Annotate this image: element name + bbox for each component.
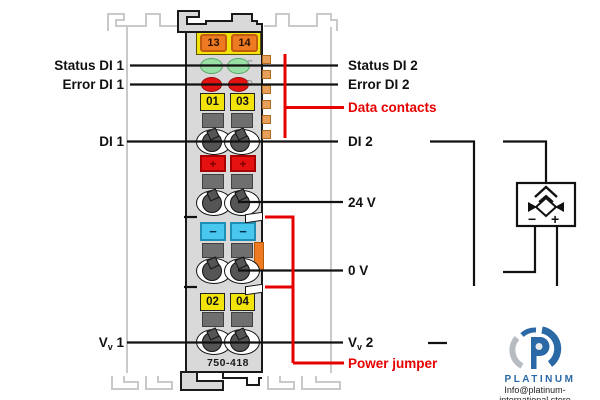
label-di2: DI 2	[348, 135, 373, 149]
data-contact	[262, 55, 271, 64]
pushbutton	[231, 174, 253, 189]
pushbutton	[231, 312, 253, 327]
terminal-number-01: 01	[200, 93, 225, 111]
sensor-triangle-icon	[528, 202, 537, 212]
watermark-logo	[512, 330, 557, 369]
watermark-email: Info@platinum-international.store	[472, 385, 598, 400]
sensor-plus-terminal: +	[551, 211, 559, 227]
vv2-main: V	[348, 335, 357, 350]
label-24v: 24 V	[348, 196, 376, 210]
led-mark-d: D	[247, 79, 253, 88]
status-led-1	[200, 58, 223, 74]
clamp-port-di2	[230, 132, 250, 152]
clamp-port-vv2	[230, 332, 250, 352]
sensor-minus-terminal: −	[528, 211, 536, 227]
label-vv2: Vv 2	[348, 336, 373, 352]
terminal-number-14: 14	[231, 34, 258, 52]
label-power-jumper: Power jumper	[348, 357, 437, 371]
vv2-num: 2	[362, 335, 373, 350]
pushbutton	[202, 113, 224, 128]
label-error-di1: Error DI 1	[62, 78, 124, 92]
pushbutton	[202, 312, 224, 327]
sensor-diamond-icon	[536, 198, 556, 216]
wiring-diagram: 13 14 C D 01 03 + + − − 02 04 750-418	[0, 0, 600, 400]
data-contact	[262, 70, 271, 79]
label-vv1: Vv 1	[99, 336, 124, 352]
label-error-di2: Error DI 2	[348, 78, 410, 92]
model-number: 750-418	[196, 357, 260, 369]
sensor-arrow-icon	[535, 187, 557, 197]
sensor-arrow-icon	[539, 196, 553, 202]
watermark-brand: PLATINUM	[498, 374, 582, 385]
minus-marker: −	[230, 222, 256, 241]
clamp-port-0v	[202, 261, 222, 281]
label-di1: DI 1	[99, 135, 124, 149]
led-mark-c: C	[247, 59, 253, 68]
minus-marker: −	[200, 222, 226, 241]
clamp-port-vv1	[202, 332, 222, 352]
data-contact	[262, 130, 271, 139]
sensor-wiring	[430, 142, 557, 287]
data-contact	[262, 115, 271, 124]
clamp-port-24v	[230, 193, 250, 213]
label-status-di2: Status DI 2	[348, 59, 418, 73]
terminal-number-03: 03	[230, 93, 255, 111]
clamp-port-24v	[202, 193, 222, 213]
terminal-number-02: 02	[200, 293, 225, 311]
data-contact	[262, 85, 271, 94]
label-data-contacts: Data contacts	[348, 101, 437, 115]
plus-marker: +	[200, 155, 226, 172]
error-led-2	[228, 77, 249, 92]
sensor-box: − +	[517, 183, 575, 227]
vv1-num: 1	[113, 335, 124, 350]
vv1-main: V	[99, 335, 108, 350]
pushbutton	[202, 243, 224, 258]
label-status-di1: Status DI 1	[54, 59, 124, 73]
label-0v: 0 V	[348, 264, 368, 278]
error-led-1	[201, 77, 222, 92]
clamp-port-0v	[230, 261, 250, 281]
pushbutton	[231, 113, 253, 128]
data-contact	[262, 100, 271, 109]
clamp-port-di1	[202, 132, 222, 152]
sensor-triangle-icon	[555, 202, 564, 212]
terminal-number-04: 04	[230, 293, 255, 311]
plus-marker: +	[230, 155, 256, 172]
pushbutton	[202, 174, 224, 189]
terminal-number-13: 13	[200, 34, 227, 52]
